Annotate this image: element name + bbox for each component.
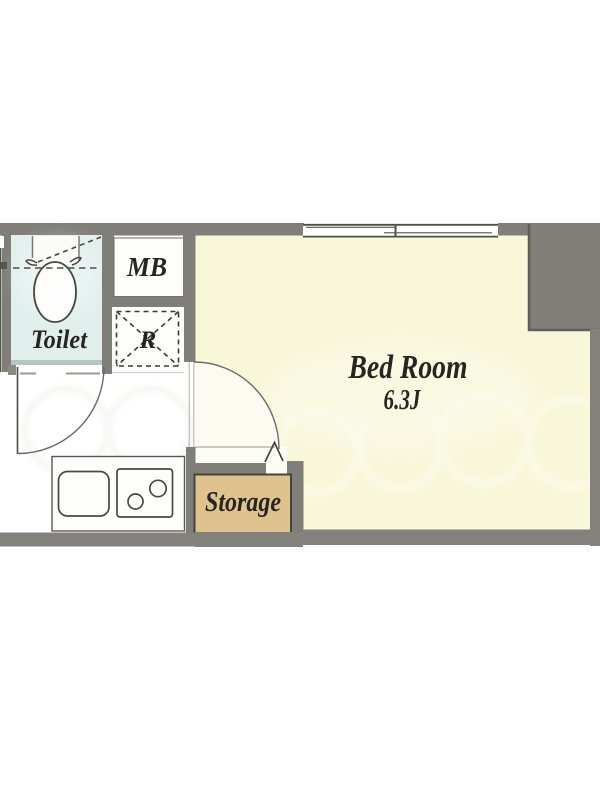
svg-text:Toilet: Toilet [31,325,88,354]
svg-text:6.3J: 6.3J [384,385,422,416]
svg-text:MB: MB [126,252,167,282]
svg-text:R: R [139,327,157,354]
svg-text:Storage: Storage [205,487,281,518]
svg-text:Bed Room: Bed Room [348,349,468,386]
